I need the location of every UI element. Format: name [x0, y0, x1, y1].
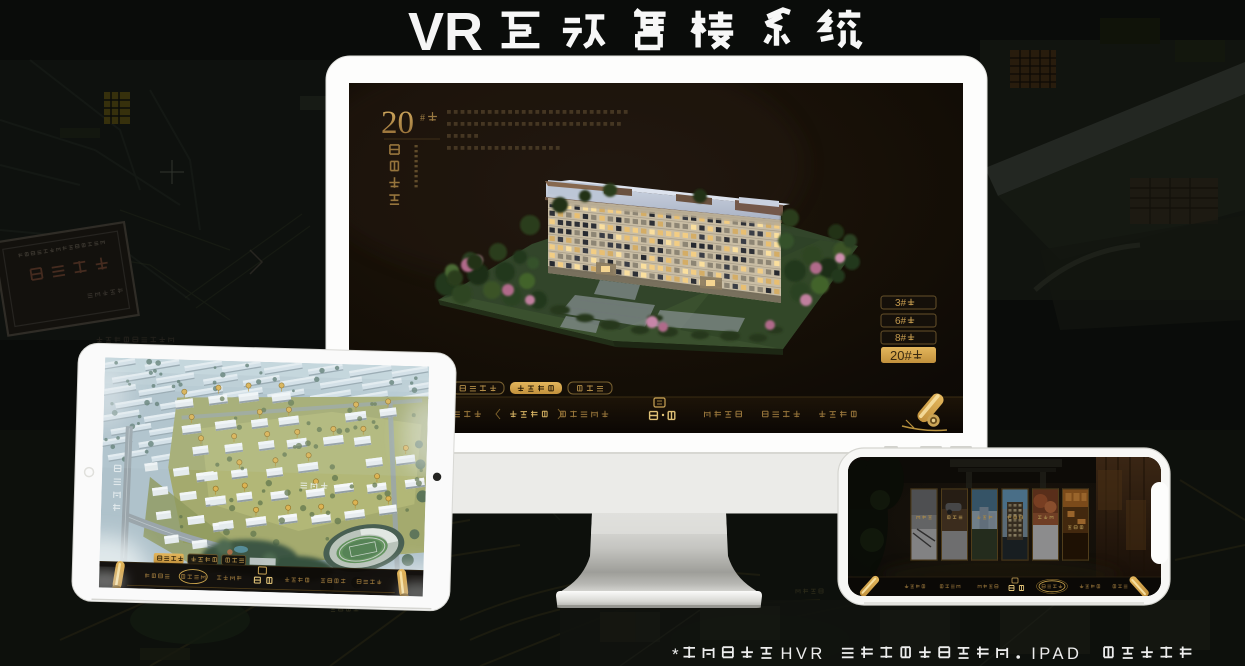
svg-text:*: * [672, 645, 679, 664]
svg-text:3#: 3# [895, 298, 907, 309]
svg-text:20: 20 [381, 105, 414, 141]
svg-text:20#: 20# [890, 348, 912, 363]
svg-text:6#: 6# [895, 316, 907, 327]
svg-text:#: # [420, 113, 425, 124]
svg-text:VR: VR [408, 2, 483, 62]
svg-text:IPAD: IPAD [1031, 645, 1082, 663]
svg-text:8#: 8# [895, 333, 907, 344]
svg-text:HVR: HVR [781, 645, 826, 663]
